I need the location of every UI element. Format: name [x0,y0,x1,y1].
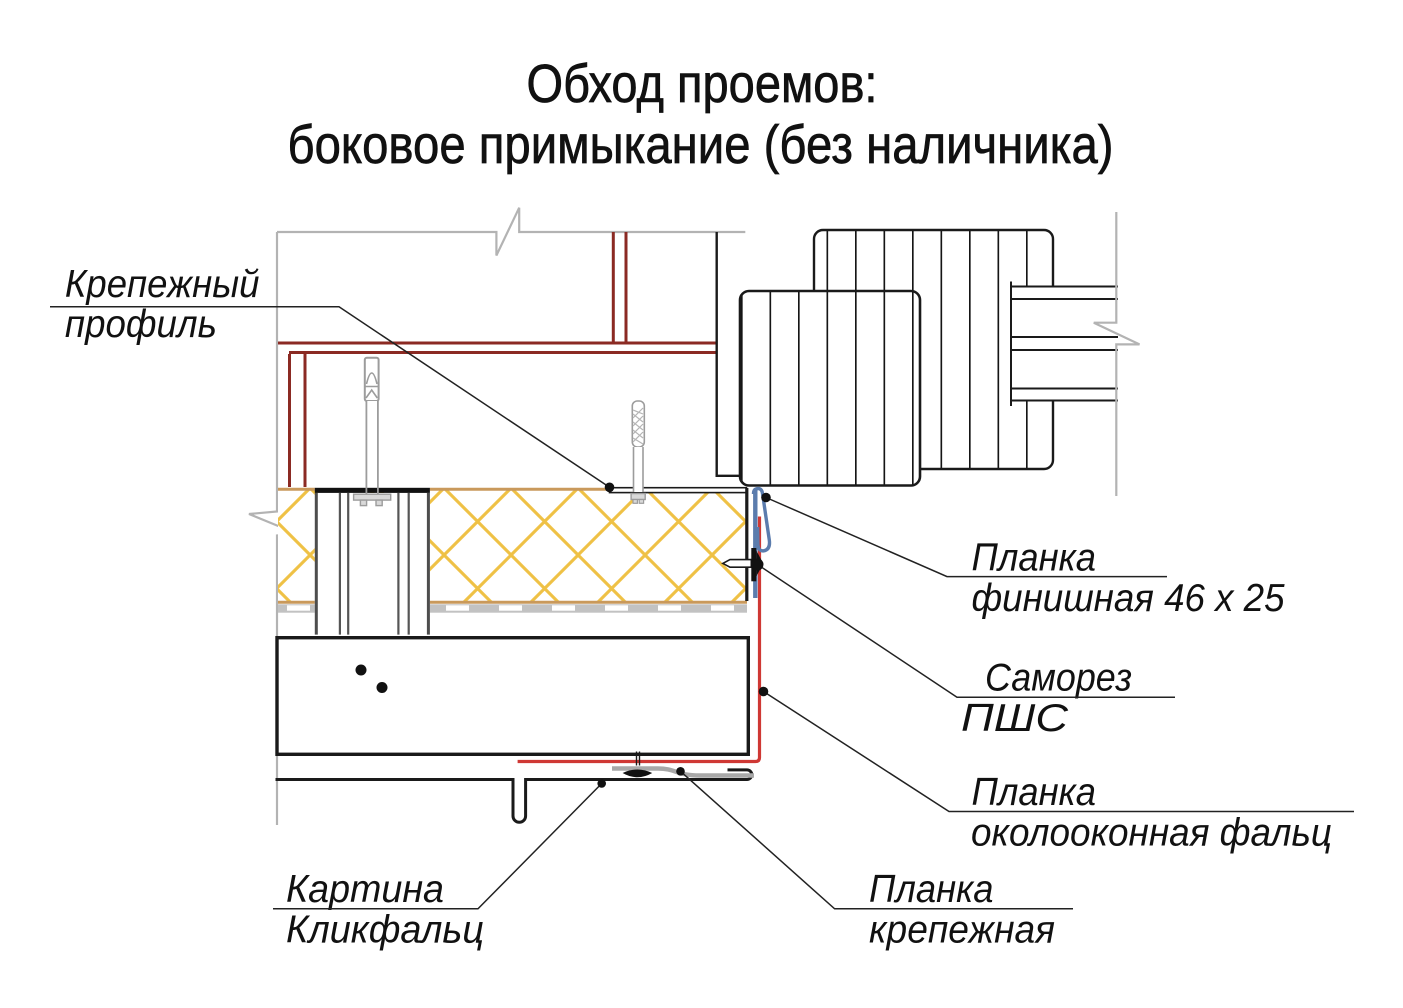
svg-text:ПШС: ПШС [961,697,1069,740]
svg-text:Планка: Планка [972,771,1097,814]
svg-text:Крепежный: Крепежный [65,263,260,306]
svg-text:профиль: профиль [65,303,217,346]
svg-text:Планка: Планка [972,537,1097,580]
svg-text:Кликфальц: Кликфальц [286,909,484,952]
svg-text:околооконная фальц: околооконная фальц [971,811,1332,854]
svg-text:Обход проемов:: Обход проемов: [527,54,878,114]
svg-text:Планка: Планка [869,868,994,911]
svg-text:Саморез: Саморез [985,657,1132,700]
svg-text:боковое примыкание (без наличн: боковое примыкание (без наличника) [288,115,1114,175]
svg-text:Картина: Картина [286,868,444,911]
svg-text:финишная 46 x 25: финишная 46 x 25 [972,577,1285,620]
svg-text:крепежная: крепежная [869,909,1055,952]
